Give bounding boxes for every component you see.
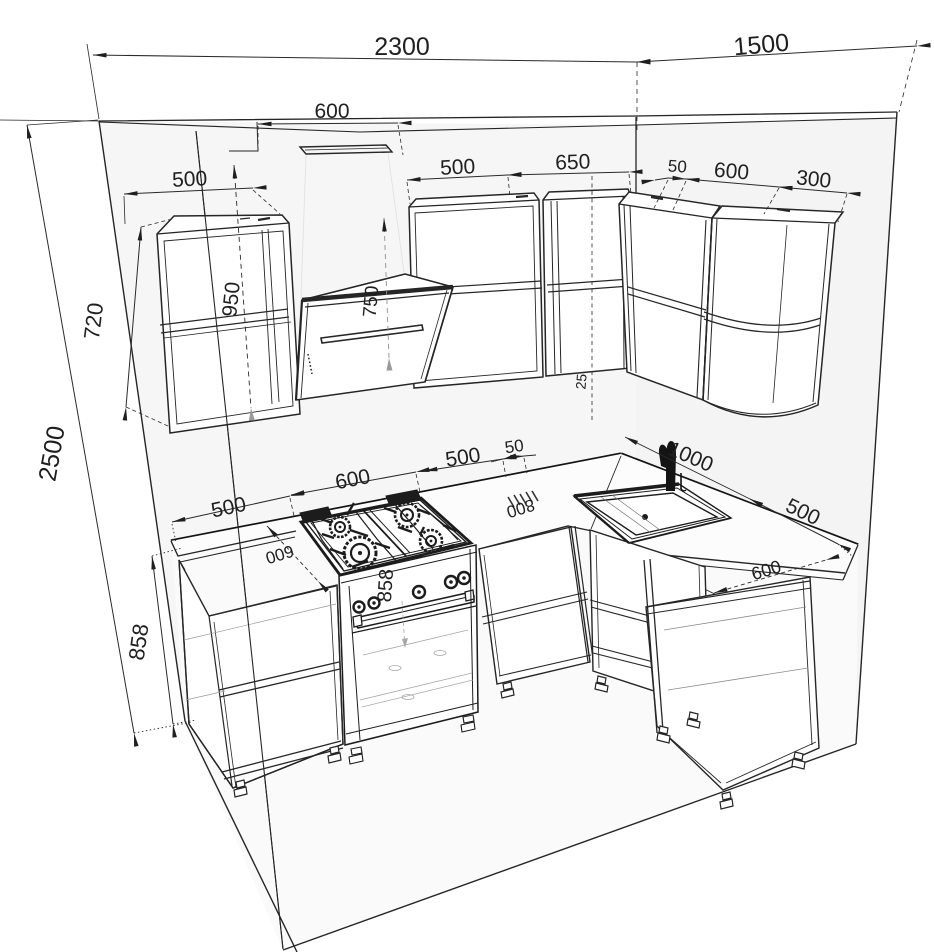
svg-text:720: 720	[79, 301, 108, 340]
svg-text:950: 950	[218, 281, 245, 318]
svg-text:500: 500	[440, 155, 476, 180]
svg-text:300: 300	[795, 166, 832, 193]
svg-text:600: 600	[713, 159, 750, 185]
svg-text:858: 858	[124, 622, 154, 662]
svg-text:500: 500	[172, 167, 208, 192]
svg-text:50: 50	[504, 436, 525, 457]
svg-text:858: 858	[374, 568, 398, 603]
svg-text:2300: 2300	[374, 33, 430, 61]
svg-text:650: 650	[555, 150, 591, 174]
svg-text:50: 50	[667, 156, 687, 176]
svg-text:25: 25	[572, 373, 589, 390]
svg-text:750: 750	[360, 285, 384, 318]
svg-text:600: 600	[314, 100, 349, 123]
svg-text:1500: 1500	[732, 29, 790, 62]
